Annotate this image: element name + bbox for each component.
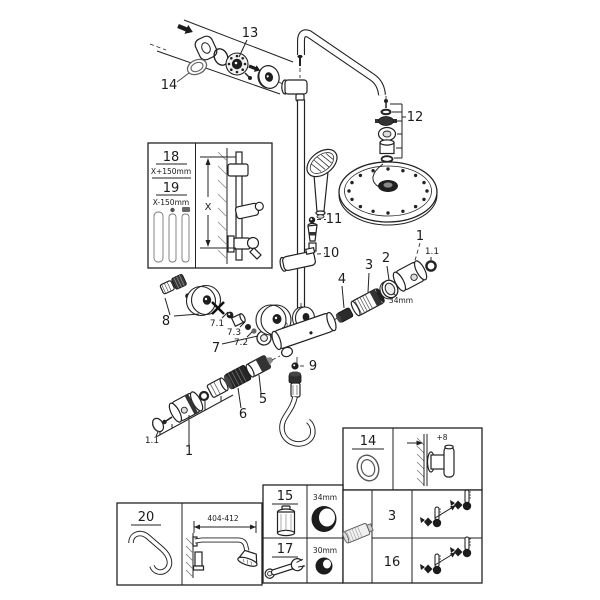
callout-1-lower: 1 (185, 444, 193, 459)
inset-axis-x: X (205, 202, 212, 213)
callout-11: 11 (326, 212, 343, 227)
shower-rail (298, 100, 305, 315)
callout-10: 10 (323, 246, 340, 261)
table-seal-offset: +8 (436, 433, 447, 442)
diverter-cartridge (226, 53, 252, 80)
callout-6: 6 (239, 407, 247, 422)
table-arm: 20 404-412 (117, 503, 262, 585)
callout-14: 14 (161, 78, 178, 93)
callout-7-3: 7.3 (227, 328, 241, 338)
thermostat-valve-body (256, 303, 338, 358)
callout-13: 13 (242, 26, 259, 41)
table-tools: 15 34mm 17 30mm (263, 485, 343, 583)
callout-1-1-lower: 1.1 (145, 436, 159, 446)
table-thermo-row-3: 3 (388, 509, 396, 524)
handle-chain-lower: 1 1.1 6 5 (145, 353, 280, 459)
table-arm-range: 404-412 (207, 514, 239, 523)
callout-8: 8 (162, 314, 170, 329)
rail-length-inset: 18 X+150mm 19 X-150mm (148, 143, 272, 268)
dim-34mm: 34mm (389, 296, 413, 305)
table-tools-size-34: 34mm (313, 493, 337, 502)
head-shower-disc (339, 162, 437, 225)
table-thermostat: 3 16 (342, 490, 482, 583)
hand-shower (302, 144, 342, 218)
callout-9: 9 (309, 359, 317, 374)
ball-joint-stack-12: 12 (375, 96, 423, 162)
inset-len-18: X+150mm (151, 167, 191, 176)
rail-slider-10: 10 (278, 246, 339, 272)
callout-2: 2 (382, 251, 390, 266)
callout-4: 4 (338, 272, 346, 287)
table-tools-part-15: 15 (277, 489, 294, 504)
inset-item-18: 18 (163, 150, 180, 165)
inset-item-19: 19 (163, 181, 180, 196)
assembly-arrow-icon (176, 22, 194, 37)
table-thermo-row-16: 16 (384, 555, 401, 570)
hose-connection-9: 9 (282, 357, 317, 444)
parts-diagram-page: 13 14 (0, 0, 600, 600)
shower-arm (301, 33, 382, 95)
callout-3: 3 (365, 258, 373, 273)
seal-ring-14: 14 (161, 56, 209, 93)
table-seal-part: 14 (360, 434, 377, 449)
table-arm-part: 20 (138, 510, 155, 525)
callout-7-1: 7.1 (210, 319, 224, 329)
inset-len-19: X-150mm (153, 198, 189, 207)
hand-shower-cone (308, 224, 317, 252)
table-seal: 14 +8 (343, 428, 482, 490)
table-tools-part-17: 17 (277, 542, 294, 557)
callout-7: 7 (212, 341, 220, 356)
callout-5: 5 (259, 392, 267, 407)
callout-12: 12 (407, 110, 424, 125)
callout-1-1-upper: 1.1 (425, 247, 439, 257)
table-tools-size-30: 30mm (313, 546, 337, 555)
callout-1-upper: 1 (416, 229, 424, 244)
exploded-parts-diagram: 13 14 (0, 0, 600, 600)
handle-chain-right: 4 3 2 34mm 1 (334, 229, 439, 324)
